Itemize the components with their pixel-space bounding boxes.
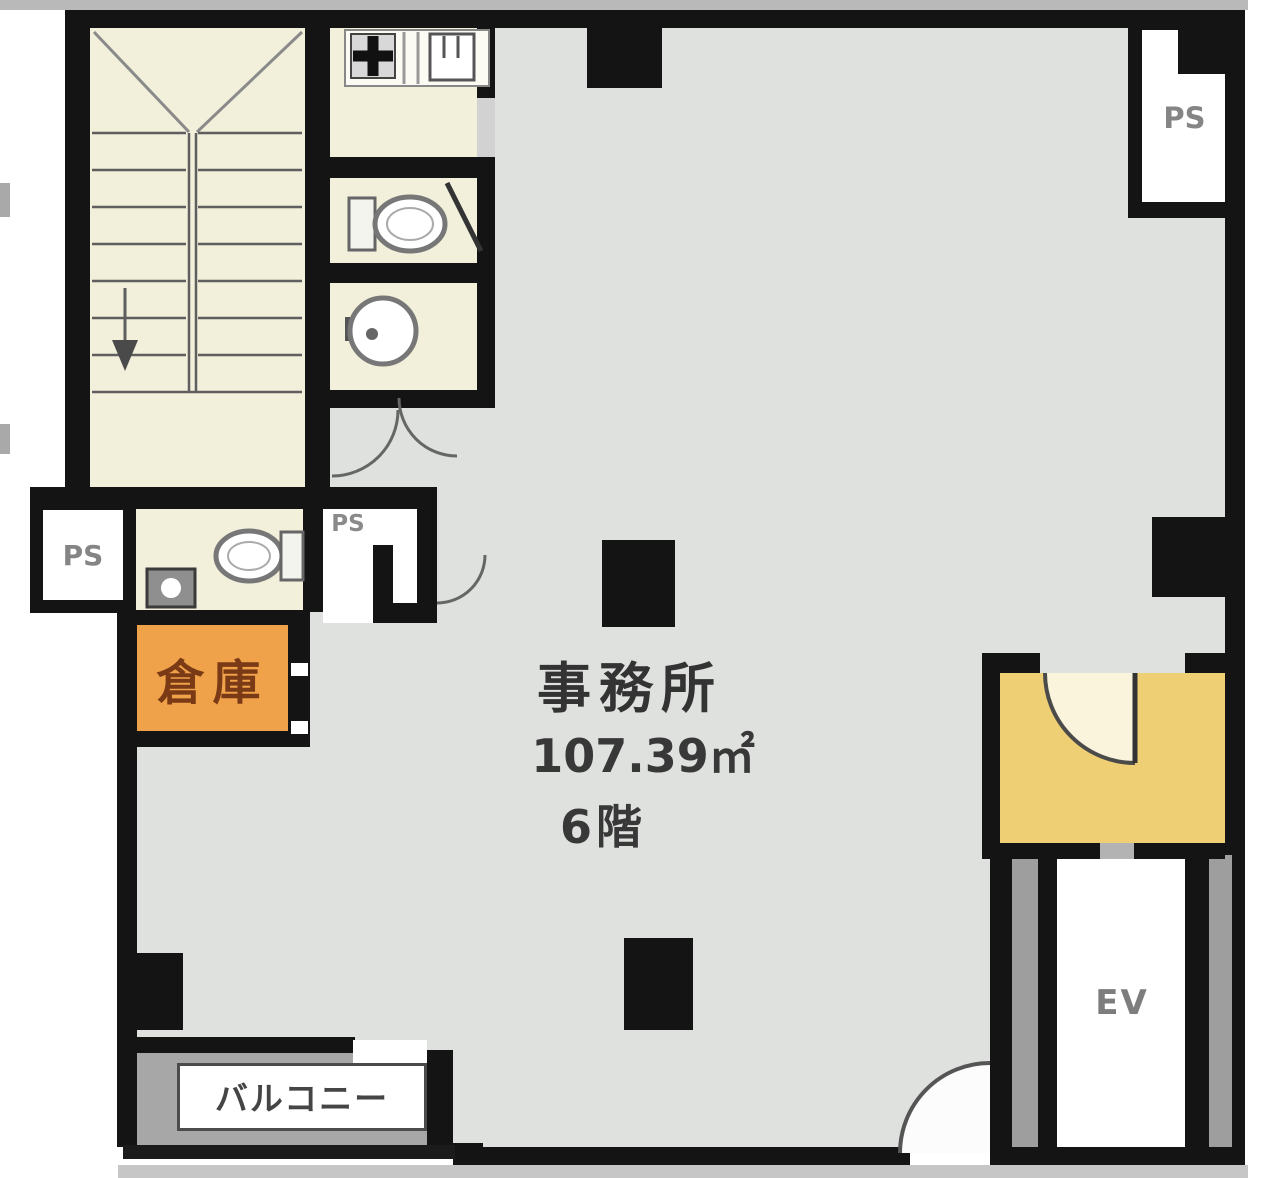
door-arc-corridor-b <box>399 398 457 456</box>
toilet-upper-icon <box>349 183 481 251</box>
office-floor-label: 6階 <box>538 796 668 852</box>
washroom-basin-icon <box>345 298 416 364</box>
pipe-space-hall-label: PS <box>320 504 376 544</box>
office-area-label: 107.39㎡ <box>508 726 778 780</box>
storage-label: 倉庫 <box>137 625 288 731</box>
door-arc-corridor-a <box>332 410 398 476</box>
toilet-lower-icons <box>147 531 303 607</box>
office-name-label: 事務所 <box>515 652 745 714</box>
toilet-door-leaf <box>447 183 481 251</box>
balcony-label: バルコニー <box>177 1063 427 1129</box>
door-arc-alcove <box>437 555 485 603</box>
pipe-space-upper-right-label: PS <box>1142 90 1227 146</box>
kitchenette-counter-icon <box>345 30 489 86</box>
elevator-label: EV <box>1058 978 1186 1028</box>
toilet-lower-icon <box>216 531 282 581</box>
pipe-space-left-label: PS <box>43 510 123 600</box>
staircase <box>92 32 302 392</box>
kitchen-sink-icon <box>430 34 474 80</box>
floor-plan: 事務所 107.39㎡ 6階 倉庫 バルコニー EV PS PS PS <box>0 0 1280 1178</box>
